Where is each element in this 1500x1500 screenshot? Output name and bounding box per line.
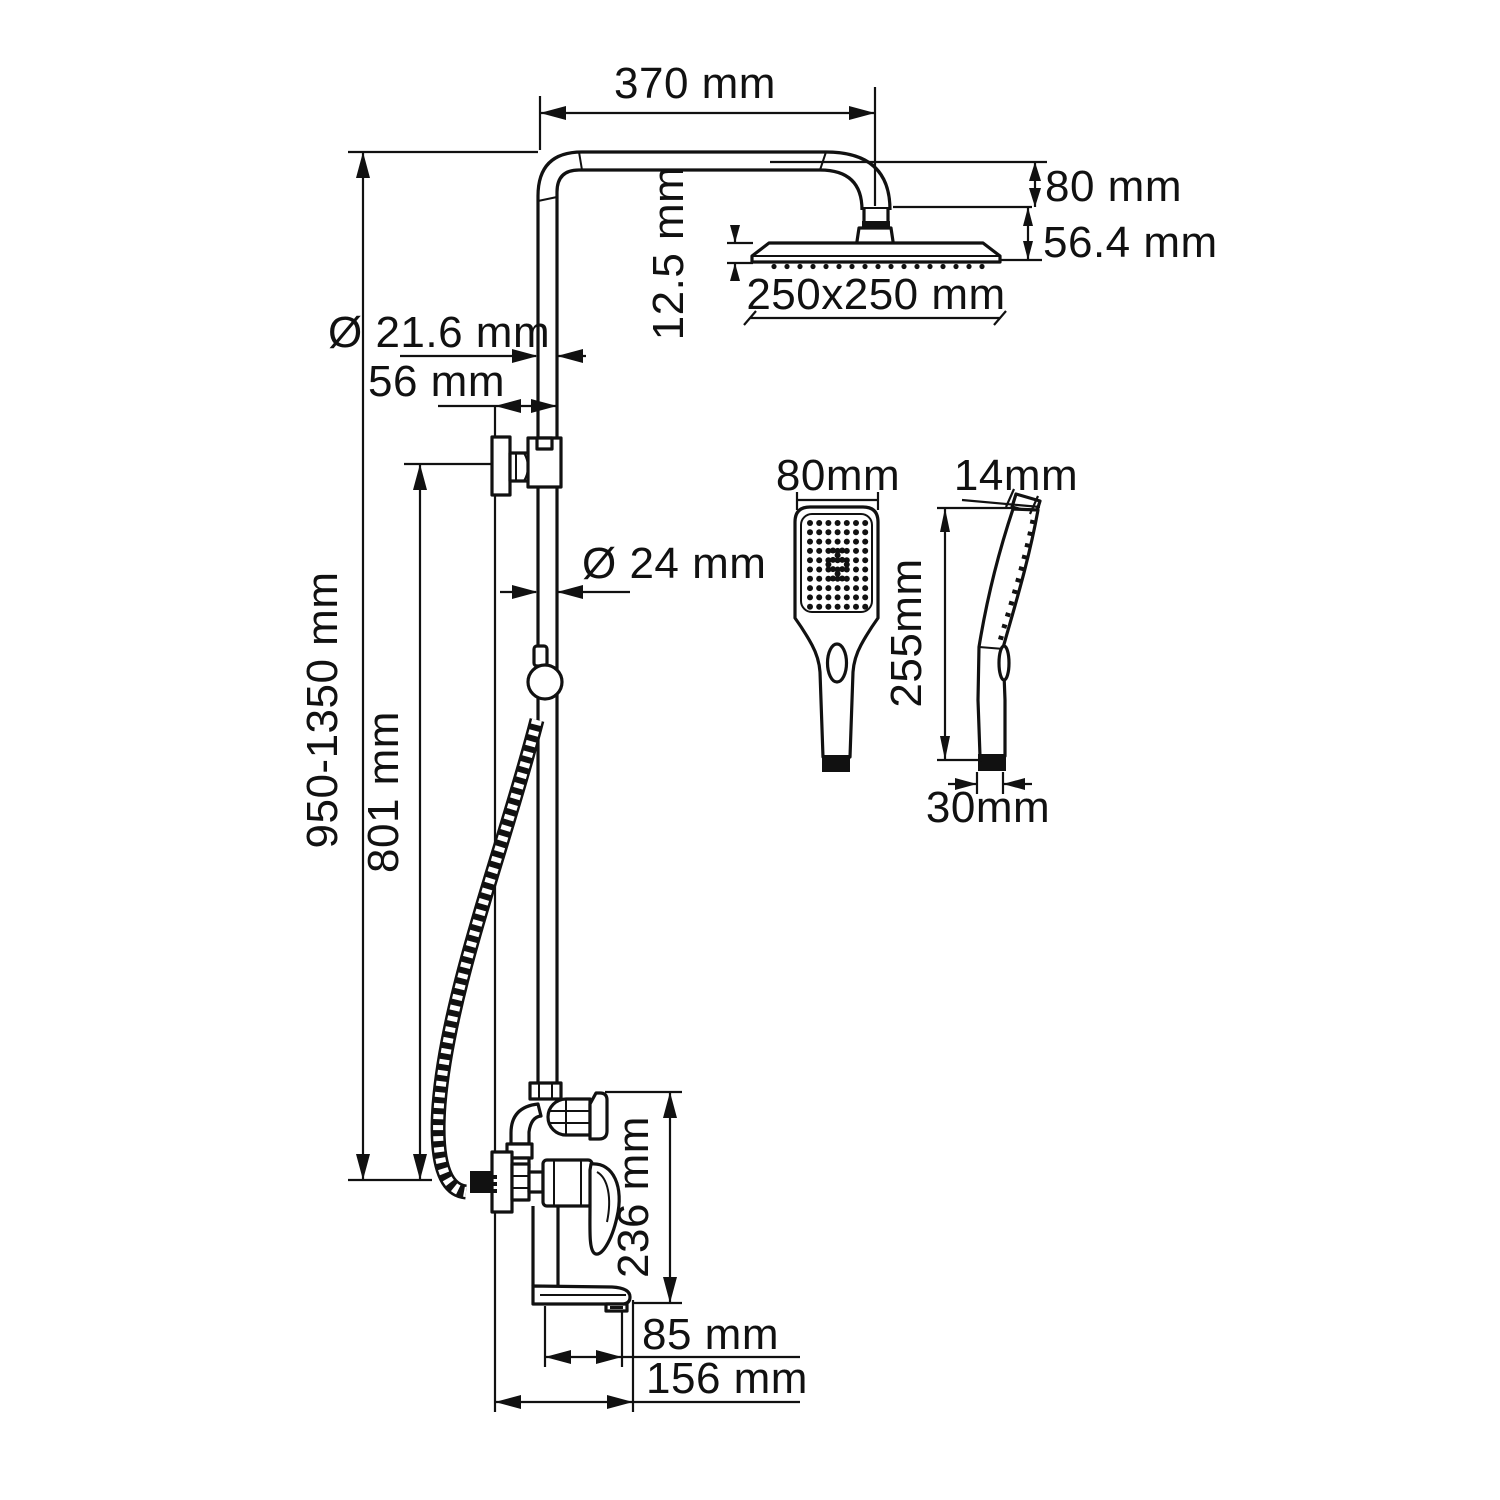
dim-bracket-distance-label: 801 mm xyxy=(359,711,408,873)
dim-handshower-length-label: 255mm xyxy=(882,558,931,707)
dim-arm-length-label: 370 mm xyxy=(614,59,776,108)
hose-elbow xyxy=(511,1104,541,1144)
hand-shower-side-view xyxy=(978,494,1040,771)
technical-drawing: 370 mm 80 mm 56.4 mm 12.5 mm 250x250 mm … xyxy=(0,0,1500,1500)
shower-column-assembly xyxy=(492,152,1000,1311)
rain-shower-head xyxy=(752,243,1000,269)
mixer-eccentric xyxy=(512,1164,529,1200)
dim-top-pipe-diameter-label: Ø 21.6 mm xyxy=(328,308,550,357)
dim-head-offset-label: 80 mm xyxy=(1045,162,1182,211)
dim-handshower-handle-label: 30mm xyxy=(926,783,1050,832)
hand-shower-button xyxy=(828,644,847,682)
diverter-body xyxy=(548,1099,590,1135)
side-inlet xyxy=(978,754,1006,771)
shower-diagram-canvas: 370 mm 80 mm 56.4 mm 12.5 mm 250x250 mm … xyxy=(0,0,1500,1500)
coupling-nut xyxy=(530,1083,561,1099)
hand-shower-holder xyxy=(470,1171,497,1193)
dim-head-thickness-label: 12.5 mm xyxy=(644,166,693,341)
dim-spout-reach-label: 85 mm xyxy=(642,1310,779,1359)
diverter-knob xyxy=(590,1093,607,1139)
dim-column-height-label: 950-1350 mm xyxy=(298,572,347,849)
rain-head-nozzles xyxy=(771,264,984,269)
dim-pipe-diameter-label: Ø 24 mm xyxy=(582,539,766,588)
mixer-body xyxy=(543,1160,592,1206)
wall-bracket xyxy=(492,437,561,495)
side-button xyxy=(999,646,1009,680)
dim-handshower-depth-label: 14mm xyxy=(954,451,1078,500)
dim-head-size-label: 250x250 mm xyxy=(746,270,1005,319)
hand-shower-front-view xyxy=(795,507,878,772)
spout-column xyxy=(533,1206,558,1286)
dim-total-depth-label: 156 mm xyxy=(646,1354,808,1403)
bracket-wall-plate xyxy=(492,437,510,495)
bracket-clamp-notch xyxy=(537,438,552,449)
dim-mixer-height-label: 236 mm xyxy=(609,1116,658,1278)
dim-head-total-height-label: 56.4 mm xyxy=(1043,218,1218,267)
dim-wall-offset-label: 56 mm xyxy=(368,357,505,406)
mixer-inlet xyxy=(529,1172,543,1192)
hand-shower-inlet xyxy=(822,755,850,772)
dim-handshower-width-label: 80mm xyxy=(776,451,900,500)
